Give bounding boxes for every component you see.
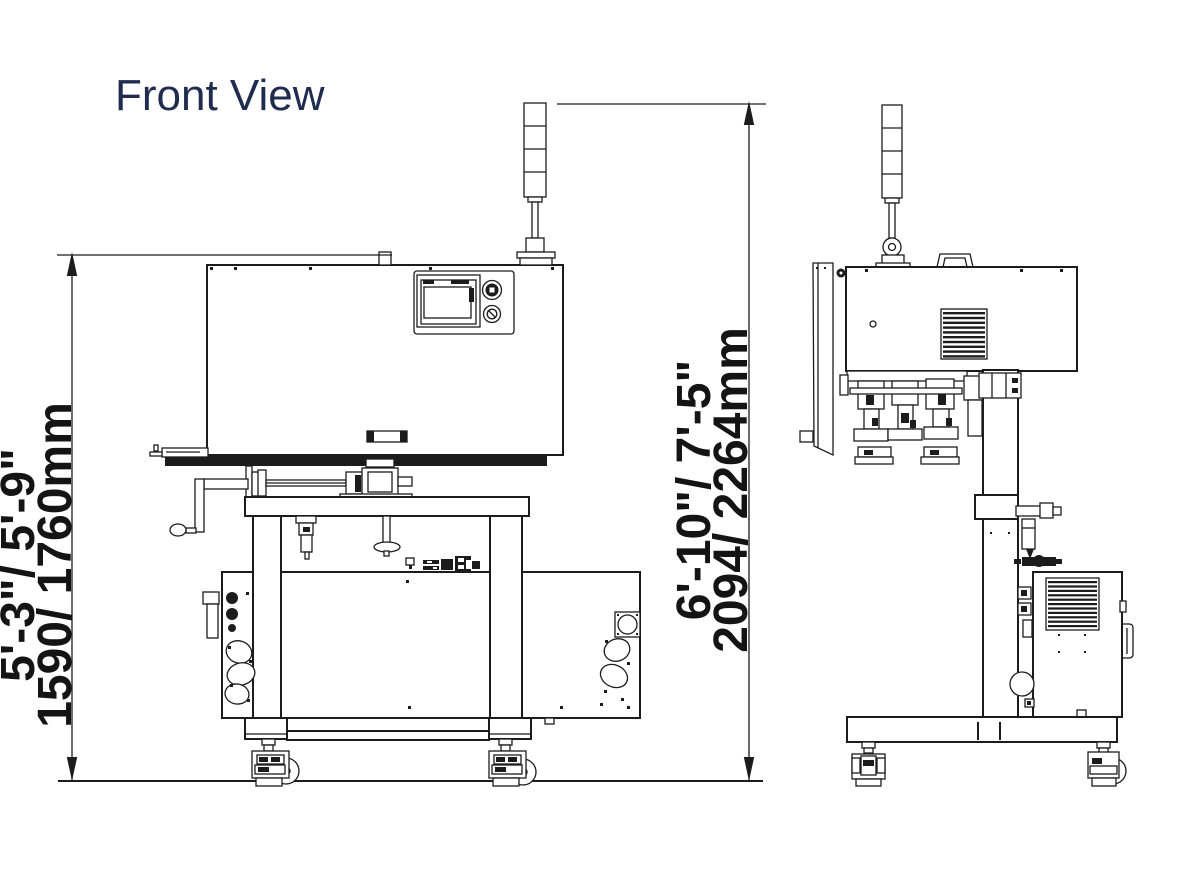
machine-dimension-diagram: Front View xyxy=(0,0,1200,884)
connector-symbols xyxy=(406,556,480,573)
side-view-drawing xyxy=(800,105,1133,786)
side-left-panel xyxy=(800,263,833,455)
arrow-down-icon xyxy=(744,757,754,781)
hmi-panel xyxy=(414,271,514,334)
cable-loop xyxy=(1010,672,1034,696)
power-connector xyxy=(226,592,238,604)
caster-front-left xyxy=(252,739,299,786)
technical-drawing-page: Front View xyxy=(0,0,1200,884)
power-connector xyxy=(226,608,238,620)
support-beam xyxy=(245,497,529,516)
cabinet-handle xyxy=(367,431,407,442)
air-filter-regulator xyxy=(296,516,316,559)
capping-head-assembly xyxy=(840,371,984,464)
hmi-screen xyxy=(424,287,471,318)
right-leg xyxy=(490,516,522,718)
page-title: Front View xyxy=(115,71,325,120)
arrow-down-icon xyxy=(67,757,77,781)
left-leg xyxy=(253,516,281,718)
fan-grille xyxy=(615,612,640,637)
support-column xyxy=(979,370,1021,717)
caster-side-right xyxy=(1088,742,1126,786)
side-lower-cabinet xyxy=(1010,572,1133,717)
signal-tower-side xyxy=(876,105,910,268)
overall-height-metric: 2094/ 2264mm xyxy=(705,327,758,653)
machine-height-metric: 1590/ 1760mm xyxy=(29,402,82,728)
small-connector xyxy=(228,624,236,632)
cabinet-lift-handle xyxy=(937,254,973,267)
base-feet xyxy=(245,718,531,740)
signal-tower-front xyxy=(517,103,555,265)
cabinet-top-post xyxy=(379,252,391,265)
front-lower-cabinet xyxy=(222,572,640,718)
caster-side-left xyxy=(852,742,885,786)
caster-front-right xyxy=(489,739,536,786)
support-rod xyxy=(374,516,400,556)
side-base-plate xyxy=(847,717,1117,742)
front-view-drawing xyxy=(150,103,640,786)
